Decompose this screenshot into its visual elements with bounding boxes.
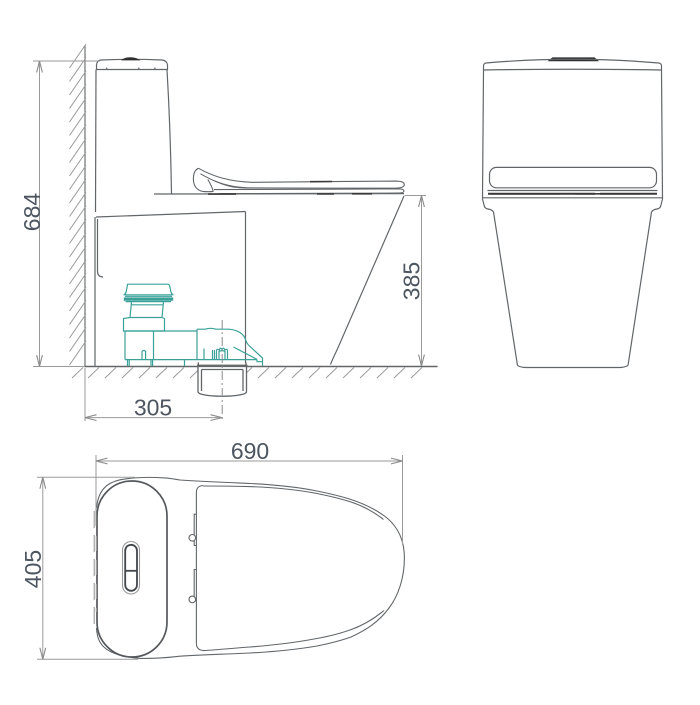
svg-text:684: 684 xyxy=(19,193,45,232)
svg-text:690: 690 xyxy=(231,438,269,464)
svg-text:305: 305 xyxy=(134,395,172,421)
svg-text:385: 385 xyxy=(399,262,425,300)
svg-text:405: 405 xyxy=(20,550,46,588)
